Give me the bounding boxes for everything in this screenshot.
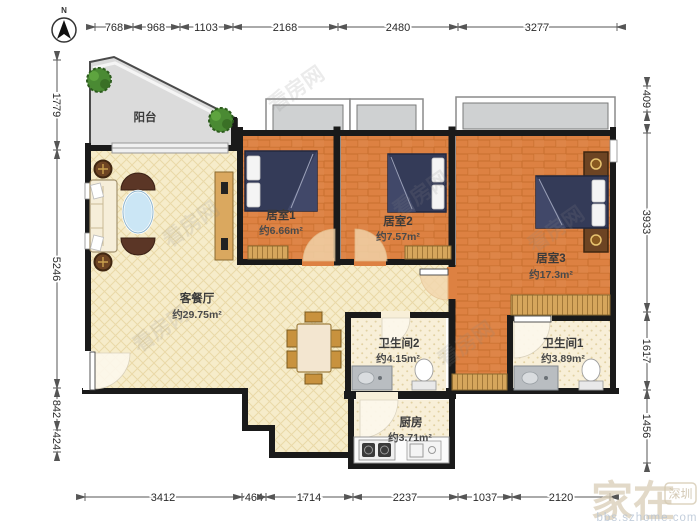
dim-label: 1617 (640, 339, 652, 363)
stove-burner (362, 443, 375, 457)
bay-window-3-glass (463, 103, 608, 129)
bedroom3-door-opening (447, 267, 457, 299)
plant-icon (87, 68, 111, 92)
bathroom2-sink (352, 366, 392, 390)
floorplan-screenshot: 阳台 居室1 约6.66m² 居室2 约7.57m² 居室3 约17.3m² 客… (0, 0, 700, 524)
dim-label: 1456 (640, 414, 652, 438)
bathroom1-sink (514, 366, 558, 390)
wardrobe (511, 295, 610, 315)
room-label-bathroom2: 卫生间2 (379, 336, 420, 350)
room-area-kitchen: 约3.71m² (388, 431, 432, 444)
dim-label: 968 (147, 22, 165, 34)
dim-label: 3277 (525, 22, 549, 34)
dim-label: 1779 (50, 93, 62, 117)
room-label-living: 客餐厅 (179, 291, 215, 305)
right-window-1 (610, 140, 617, 162)
side-table (95, 161, 112, 178)
room-label-bathroom1: 卫生间1 (543, 336, 584, 350)
plant-icon (209, 108, 233, 132)
windows (266, 97, 615, 133)
room-label-kitchen: 厨房 (400, 415, 423, 429)
balcony-floor (90, 57, 237, 146)
nightstand (584, 228, 608, 252)
bathroom1-door-leaf (514, 316, 551, 322)
hall-cabinet (452, 374, 507, 390)
dresser (248, 246, 288, 259)
dimensions-bottom: 3412 464 1714 2237 1037 2120 (85, 492, 610, 504)
dim-label: 5246 (50, 257, 62, 281)
side-table (95, 254, 112, 271)
room-area-bathroom1: 约3.89m² (541, 352, 585, 365)
compass-north-label: N (61, 6, 67, 15)
nightstand (584, 152, 608, 176)
dim-label: 1103 (194, 22, 218, 34)
room-label-bedroom1: 居室1 (266, 208, 296, 222)
dim-label: 2237 (393, 492, 417, 504)
dim-label: 424 (50, 432, 62, 450)
room-area-bathroom2: 约4.15m² (376, 352, 420, 365)
bedroom3-door-leaf (420, 269, 448, 275)
dim-label: 3412 (151, 492, 175, 504)
entry-door-leaf (90, 352, 95, 390)
dim-label: 409 (640, 90, 652, 108)
dim-label: 3933 (640, 210, 652, 234)
bed (245, 151, 317, 211)
stove-burner (378, 443, 391, 457)
room-area-bedroom1: 约6.66m² (259, 224, 303, 237)
dimensions-right: 409 3933 1617 1456 (640, 86, 652, 463)
sofa (90, 180, 117, 252)
brand-badge-text: 深圳 (668, 487, 692, 501)
dim-label: 2168 (273, 22, 297, 34)
dim-label: 2120 (549, 492, 573, 504)
brand-watermark: 家在 深圳 bbs.szhome.com (591, 478, 697, 524)
dim-label: 842 (50, 400, 62, 418)
dim-label: 1714 (297, 492, 321, 504)
room-area-bedroom2: 约7.57m² (376, 230, 420, 243)
compass-icon: N (52, 6, 76, 42)
dim-label: 1037 (473, 492, 497, 504)
dim-label: 464 (245, 492, 263, 504)
bay-window-2-glass (357, 105, 416, 131)
dim-label: 2480 (386, 22, 410, 34)
dimensions-top: 768 968 1103 2168 2480 3277 (95, 22, 617, 34)
dresser (405, 246, 451, 259)
floorplan-canvas: 阳台 居室1 约6.66m² 居室2 约7.57m² 居室3 约17.3m² 客… (0, 0, 700, 524)
dimensions-left: 1779 5246 842 424 (50, 60, 62, 452)
room-label-balcony: 阳台 (134, 110, 157, 124)
dim-label: 768 (105, 22, 123, 34)
room-area-bedroom3: 约17.3m² (529, 268, 573, 281)
brand-url-text: bbs.szhome.com (597, 512, 698, 524)
